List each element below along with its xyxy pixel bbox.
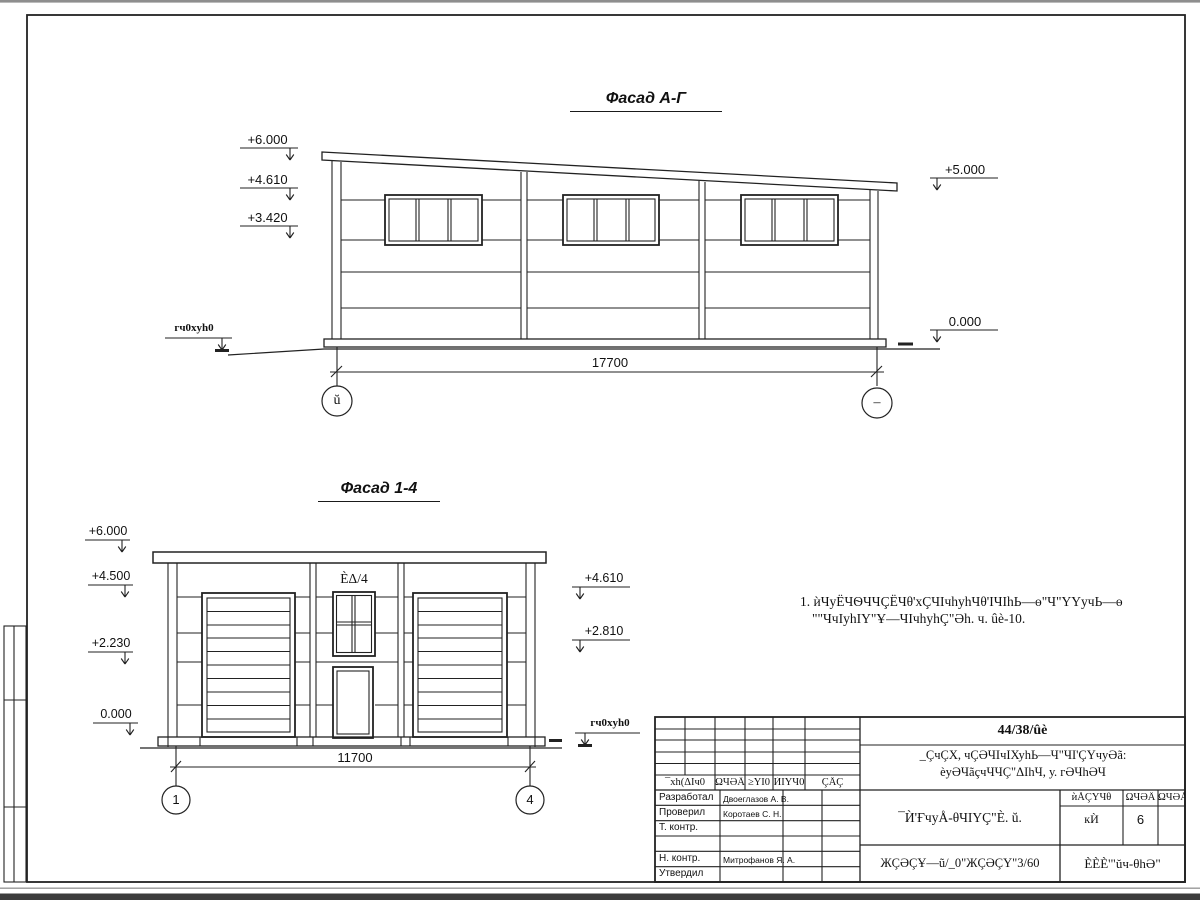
sheet-number: 6 (1123, 812, 1158, 827)
revision-header-dok: ЍΙҮЧ0 (773, 777, 805, 788)
axis-bubble-4: 4 (516, 786, 544, 814)
stage-value: кЍ (1060, 812, 1123, 827)
elevation-mark-label: 0.000 (91, 707, 141, 721)
window-tag: ÈΔ/4 (330, 571, 378, 587)
note-line-1: 1. ѝЧуЁЧѲЧЧÇЁЧθ'хÇЧΙчhуhЧθ'ΙЧΙhЬ—ѳ"Ч"ҮҮу… (800, 594, 1123, 610)
elevation-mark-label: +2.810 (575, 624, 633, 638)
ground-level-label: гч0xуh0 (163, 322, 225, 334)
project-name-line1: _ÇчÇХ, чÇӘЧΙчΙХуhЬ—Ч"ЧΙ'ÇҮчуӘã: (868, 748, 1178, 763)
elevation-mark-label: +4.610 (575, 571, 633, 585)
axis-bubble-a: ŭ (322, 386, 352, 416)
revision-header-list: ≥ΥΙ0 (745, 777, 773, 788)
signature-role: Разработал (659, 792, 713, 803)
ground-level-label: гч0xуh0 (580, 717, 640, 729)
note-line-2: ""ЧчΙуhΙҮ"Ұ—ЧΙчhуhÇ"Әh. ч. ûè-10. (812, 611, 1025, 627)
facade-14-title: Фасад 1-4 (318, 480, 440, 502)
dimension-label: 17700 (540, 355, 680, 370)
organization-name: ÈÈÈ'"ŭч-θhӘ" (1060, 845, 1185, 882)
revision-header-podp: ÇÅÇ (805, 777, 860, 788)
doc-number: 44/38/ûè (860, 719, 1185, 743)
revision-header-koluch: ΩЧӘÄ (715, 777, 745, 788)
elevation-mark-label: 0.000 (935, 314, 995, 329)
elevation-mark-label: +6.000 (83, 524, 133, 538)
drawing-sheet: Фасад А-Г Фасад 1-4 +6.000 +4.610 +3.420… (0, 0, 1200, 900)
elevation-mark-label: +4.500 (86, 569, 136, 583)
signature-role: Проверил (659, 807, 705, 818)
sheet-header: ΩЧӘÄ (1123, 792, 1158, 803)
drawing-title: ¯Ѝ'ҒчуÅ-θЧΙΥÇ"È. ŭ. (860, 790, 1060, 845)
axis-bubble-g: – (862, 388, 892, 418)
axis-bubble-1: 1 (162, 786, 190, 814)
signature-name: Митрофанов Я. А. (723, 855, 782, 865)
elevation-mark-label: +5.000 (935, 162, 995, 177)
signature-role: Н. контр. (659, 853, 700, 864)
signature-name: Двоеглазов А. В. (723, 794, 782, 804)
drawing-subtitle: ЖÇӘÇҰ—ũ/_0"ЖÇӘÇҮ"3/60 (860, 845, 1060, 882)
signature-role: Т. контр. (659, 822, 698, 833)
dimension-label: 11700 (290, 750, 420, 765)
revision-header-izm: ¯хh(ΔΙч0 (655, 777, 715, 788)
facade-ag-title: Фасад А-Г (570, 90, 722, 112)
stage-header: ѝÅÇҮЧθ (1060, 792, 1123, 803)
signature-role: Утвердил (659, 868, 703, 879)
sheets-header: ΩЧӘÅΙΥ (1158, 792, 1185, 803)
project-name-line2: èуӘЧãçчЧЧÇ"ΔΙhЧ, у. гӘЧhӘЧ (868, 765, 1178, 780)
elevation-mark-label: +3.420 (240, 210, 295, 225)
elevation-mark-label: +6.000 (240, 132, 295, 147)
elevation-mark-label: +2.230 (86, 636, 136, 650)
elevation-mark-label: +4.610 (240, 172, 295, 187)
signature-name: Коротаев С. Н. (723, 809, 782, 819)
